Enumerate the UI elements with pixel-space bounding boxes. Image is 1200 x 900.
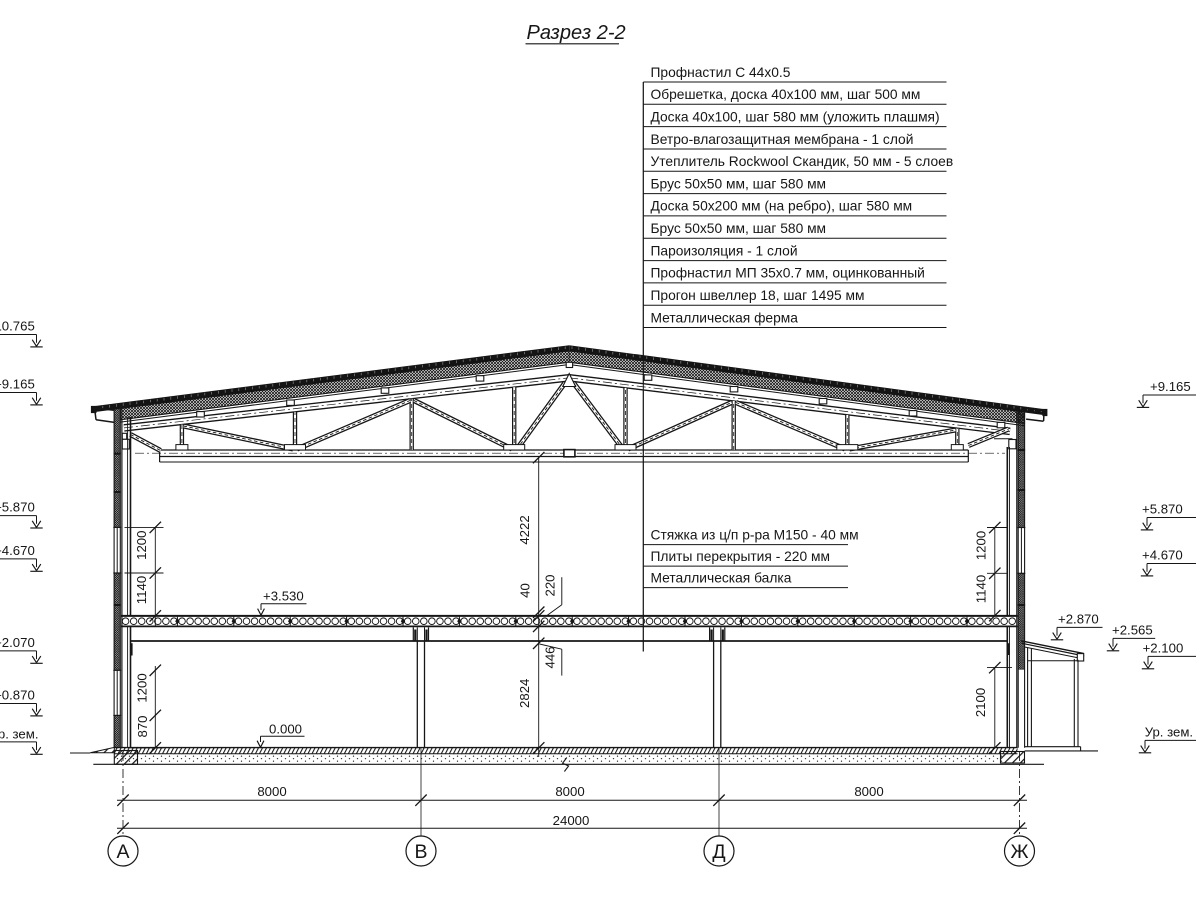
svg-text:Пароизоляция - 1 слой: Пароизоляция - 1 слой — [651, 243, 798, 258]
svg-text:1200: 1200 — [135, 673, 150, 702]
svg-text:+4.670: +4.670 — [1142, 548, 1183, 563]
svg-text:Брус 50х50 мм, шаг 580 мм: Брус 50х50 мм, шаг 580 мм — [651, 176, 827, 191]
svg-text:+3.530: +3.530 — [263, 589, 304, 604]
svg-text:Д: Д — [712, 841, 725, 863]
svg-text:Профнастил МП 35х0.7 мм, оцинк: Профнастил МП 35х0.7 мм, оцинкованный — [651, 266, 925, 281]
svg-text:Утеплитель Rockwool Скандик, 5: Утеплитель Rockwool Скандик, 50 мм - 5 с… — [651, 154, 954, 169]
svg-text:Разрез 2-2: Разрез 2-2 — [527, 22, 626, 44]
svg-text:Ж: Ж — [1010, 841, 1028, 863]
svg-text:40: 40 — [518, 583, 533, 598]
svg-text:Металлическая балка: Металлическая балка — [651, 570, 792, 585]
svg-text:Металлическая ферма: Металлическая ферма — [651, 310, 799, 325]
svg-text:+2.070: +2.070 — [0, 635, 35, 650]
svg-text:В: В — [414, 841, 427, 863]
svg-text:8000: 8000 — [854, 784, 883, 799]
svg-text:Доска 40х100, шаг 580 мм (улож: Доска 40х100, шаг 580 мм (уложить плашмя… — [651, 109, 940, 124]
svg-text:220: 220 — [543, 574, 558, 596]
svg-text:Профнастил С 44х0.5: Профнастил С 44х0.5 — [651, 65, 791, 80]
svg-text:+9.165: +9.165 — [0, 377, 35, 392]
svg-text:+5.870: +5.870 — [1142, 502, 1183, 517]
svg-text:+4.670: +4.670 — [0, 543, 35, 558]
svg-text:24000: 24000 — [553, 813, 590, 828]
svg-text:0.000: 0.000 — [269, 721, 302, 736]
svg-text:Брус 50х50 мм, шаг 580 мм: Брус 50х50 мм, шаг 580 мм — [651, 221, 827, 236]
svg-text:+0.870: +0.870 — [0, 688, 35, 703]
svg-text:8000: 8000 — [257, 784, 286, 799]
svg-text:Обрешетка, доска 40х100 мм, ша: Обрешетка, доска 40х100 мм, шаг 500 мм — [651, 87, 921, 102]
svg-text:2824: 2824 — [517, 679, 532, 708]
svg-text:Доска 50х200 мм (на ребро), ша: Доска 50х200 мм (на ребро), шаг 580 мм — [651, 199, 913, 214]
svg-text:8000: 8000 — [555, 784, 584, 799]
svg-text:870: 870 — [135, 715, 150, 737]
svg-text:1200: 1200 — [134, 531, 149, 560]
svg-text:Ветро-влагозащитная мембрана -: Ветро-влагозащитная мембрана - 1 слой — [651, 132, 914, 147]
svg-text:+10.765: +10.765 — [0, 319, 35, 334]
svg-text:А: А — [116, 841, 129, 863]
svg-text:1200: 1200 — [974, 531, 989, 560]
svg-text:Ур. зем.: Ур. зем. — [0, 726, 39, 741]
svg-text:+2.870: +2.870 — [1058, 611, 1099, 626]
svg-text:+9.165: +9.165 — [1150, 379, 1191, 394]
svg-text:+2.100: +2.100 — [1143, 640, 1184, 655]
svg-text:446: 446 — [543, 646, 558, 668]
svg-text:+5.870: +5.870 — [0, 500, 35, 515]
svg-text:+2.565: +2.565 — [1112, 622, 1153, 637]
svg-text:2100: 2100 — [973, 688, 988, 717]
svg-text:Прогон швеллер 18, шаг 1495 мм: Прогон швеллер 18, шаг 1495 мм — [651, 288, 865, 303]
svg-text:Ур. зем.: Ур. зем. — [1145, 724, 1193, 739]
svg-text:Плиты перекрытия - 220 мм: Плиты перекрытия - 220 мм — [651, 549, 830, 564]
svg-text:Стяжка из ц/п р-ра М150 - 40 м: Стяжка из ц/п р-ра М150 - 40 мм — [651, 527, 859, 542]
svg-text:4222: 4222 — [517, 515, 532, 544]
svg-text:1140: 1140 — [134, 576, 149, 604]
svg-text:1140: 1140 — [974, 575, 989, 603]
